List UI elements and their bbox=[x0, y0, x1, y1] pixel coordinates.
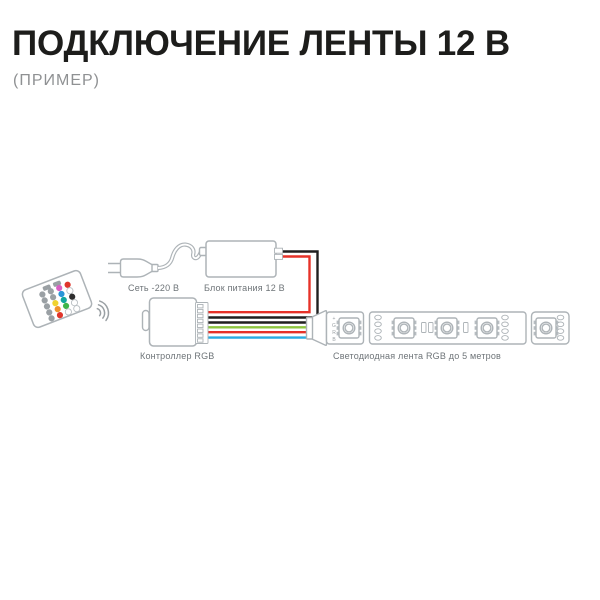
psu-output-terminal bbox=[275, 248, 283, 253]
strip-pad-label: + bbox=[333, 316, 336, 322]
strip-pad-label: G bbox=[332, 323, 336, 329]
power-supply-unit bbox=[200, 241, 283, 277]
mains-cable bbox=[158, 245, 201, 268]
label-mains: Сеть -220 В bbox=[128, 283, 179, 293]
psu-body bbox=[206, 241, 276, 277]
strip-pad-label: R bbox=[332, 330, 336, 336]
ir-remote bbox=[21, 269, 93, 329]
led-chip bbox=[337, 318, 362, 338]
infographic-canvas: ПОДКЛЮЧЕНИЕ ЛЕНТЫ 12 В (ПРИМЕР) bbox=[0, 0, 600, 600]
led-chip bbox=[534, 318, 559, 338]
led-chip bbox=[475, 318, 500, 338]
strip-resistor bbox=[464, 323, 469, 333]
controller-ir-window bbox=[143, 311, 150, 331]
ir-waves-icon bbox=[95, 299, 111, 321]
led-strip: + G R B bbox=[327, 312, 570, 344]
wiring-diagram: + G R B Сеть -220 В Блок питания 12 В Ко… bbox=[0, 0, 600, 600]
strip-connector bbox=[307, 311, 327, 346]
label-controller: Контроллер RGB bbox=[140, 351, 214, 361]
led-chip bbox=[392, 318, 417, 338]
rgb-controller bbox=[143, 298, 209, 346]
label-psu: Блок питания 12 В bbox=[204, 283, 285, 293]
power-plug bbox=[108, 245, 201, 277]
psu-output-terminal bbox=[275, 254, 283, 259]
label-strip: Светодиодная лента RGB до 5 метров bbox=[333, 351, 501, 361]
strip-resistor bbox=[422, 323, 427, 333]
controller-body bbox=[150, 298, 197, 346]
led-chip bbox=[435, 318, 460, 338]
strip-resistor bbox=[429, 323, 434, 333]
